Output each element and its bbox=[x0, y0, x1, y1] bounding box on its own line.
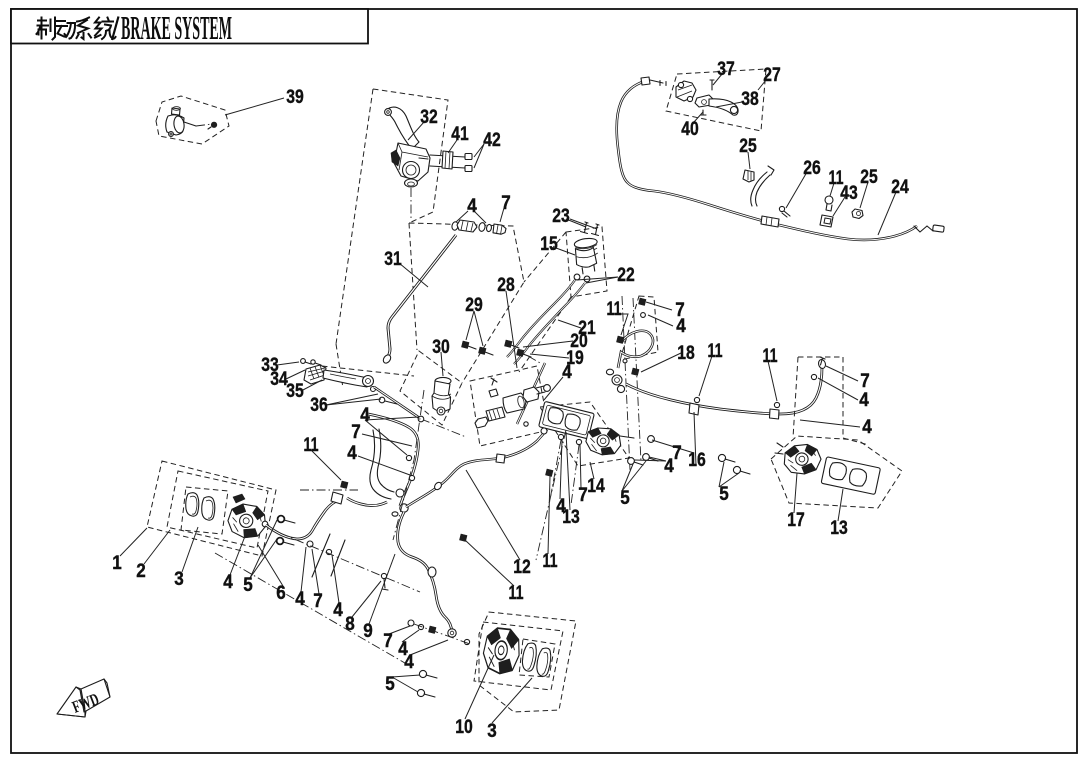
svg-text:7: 7 bbox=[351, 422, 361, 443]
svg-text:31: 31 bbox=[384, 249, 402, 270]
svg-text:13: 13 bbox=[830, 518, 848, 539]
svg-text:12: 12 bbox=[513, 557, 531, 578]
svg-text:17: 17 bbox=[787, 510, 805, 531]
svg-text:37: 37 bbox=[717, 59, 735, 80]
svg-text:27: 27 bbox=[763, 65, 781, 86]
svg-text:10: 10 bbox=[455, 717, 473, 738]
svg-text:4: 4 bbox=[467, 196, 477, 217]
svg-text:43: 43 bbox=[840, 183, 858, 204]
svg-text:6: 6 bbox=[276, 583, 286, 604]
svg-text:22: 22 bbox=[617, 265, 635, 286]
svg-text:35: 35 bbox=[286, 381, 304, 402]
svg-text:4: 4 bbox=[404, 652, 414, 673]
svg-text:38: 38 bbox=[741, 89, 759, 110]
svg-text:16: 16 bbox=[688, 450, 706, 471]
svg-text:24: 24 bbox=[891, 177, 909, 198]
svg-text:40: 40 bbox=[681, 119, 699, 140]
svg-text:5: 5 bbox=[385, 674, 395, 695]
svg-text:18: 18 bbox=[677, 343, 695, 364]
svg-text:36: 36 bbox=[310, 395, 328, 416]
svg-text:11: 11 bbox=[607, 299, 622, 320]
svg-text:14: 14 bbox=[587, 476, 605, 497]
svg-text:26: 26 bbox=[803, 158, 821, 179]
svg-text:25: 25 bbox=[739, 136, 757, 157]
svg-text:4: 4 bbox=[859, 390, 869, 411]
svg-text:4: 4 bbox=[223, 572, 233, 593]
svg-text:30: 30 bbox=[432, 337, 450, 358]
svg-text:4: 4 bbox=[664, 456, 674, 477]
svg-text:11: 11 bbox=[708, 341, 723, 362]
svg-text:5: 5 bbox=[719, 484, 729, 505]
svg-text:FWD: FWD bbox=[70, 689, 102, 716]
svg-text:25: 25 bbox=[860, 167, 878, 188]
svg-text:4: 4 bbox=[295, 589, 305, 610]
svg-text:7: 7 bbox=[313, 591, 323, 612]
svg-text:8: 8 bbox=[345, 614, 355, 635]
svg-text:BRAKE SYSTEM: BRAKE SYSTEM bbox=[121, 10, 232, 47]
svg-text:4: 4 bbox=[562, 362, 572, 383]
svg-text:4: 4 bbox=[676, 316, 686, 337]
svg-text:1: 1 bbox=[112, 553, 122, 574]
svg-text:4: 4 bbox=[347, 443, 357, 464]
svg-text:7: 7 bbox=[383, 631, 393, 652]
svg-text:29: 29 bbox=[465, 295, 483, 316]
svg-text:15: 15 bbox=[540, 234, 558, 255]
svg-text:39: 39 bbox=[286, 87, 304, 108]
svg-text:13: 13 bbox=[562, 507, 580, 528]
svg-text:7: 7 bbox=[501, 193, 511, 214]
svg-text:5: 5 bbox=[243, 575, 253, 596]
svg-text:9: 9 bbox=[363, 621, 373, 642]
svg-text:11: 11 bbox=[509, 583, 524, 604]
svg-text:4: 4 bbox=[333, 600, 343, 621]
svg-text:42: 42 bbox=[483, 130, 501, 151]
svg-text:5: 5 bbox=[620, 488, 630, 509]
svg-text:4: 4 bbox=[360, 405, 370, 426]
svg-text:28: 28 bbox=[497, 275, 515, 296]
svg-text:7: 7 bbox=[860, 371, 870, 392]
svg-text:3: 3 bbox=[174, 569, 184, 590]
svg-text:32: 32 bbox=[420, 107, 438, 128]
svg-text:11: 11 bbox=[763, 346, 778, 367]
svg-text:4: 4 bbox=[862, 417, 872, 438]
svg-text:3: 3 bbox=[487, 721, 497, 742]
svg-text:11: 11 bbox=[304, 435, 319, 456]
svg-text:23: 23 bbox=[552, 206, 570, 227]
svg-text:41: 41 bbox=[451, 124, 469, 145]
svg-text:7: 7 bbox=[578, 485, 588, 506]
svg-text:11: 11 bbox=[543, 551, 558, 572]
svg-text:2: 2 bbox=[136, 561, 146, 582]
